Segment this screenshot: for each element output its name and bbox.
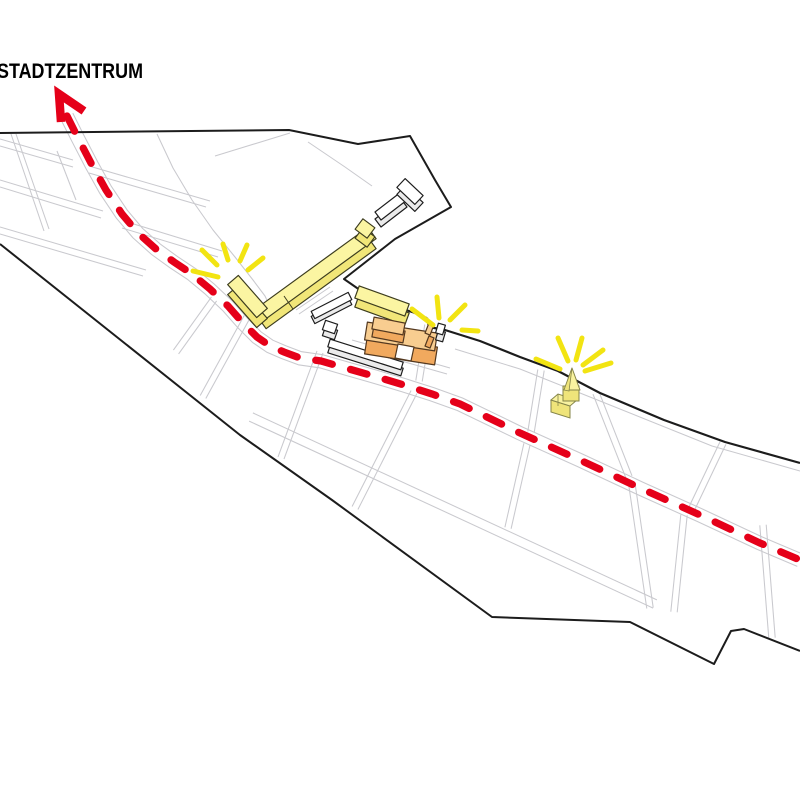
- svg-text:STADTZENTRUM: STADTZENTRUM: [0, 59, 143, 83]
